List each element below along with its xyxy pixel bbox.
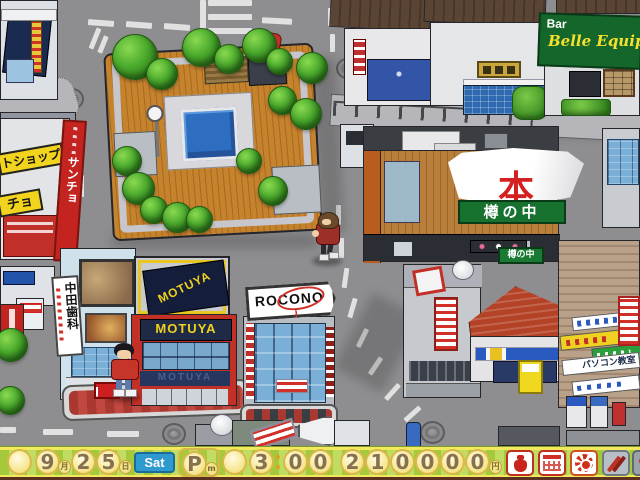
partial-structure [334,420,370,446]
yellow-stand-sign [518,360,543,394]
gear-icon [580,459,592,471]
money-bag-icon [514,460,527,472]
date-day-ones: 5 [96,449,121,475]
right-edge-building[interactable] [602,128,640,228]
rocono-sign: ROCONO [245,281,337,321]
red-vertical-sign [353,39,366,75]
tree [214,44,244,74]
rocono-small-sign [276,379,308,393]
calendar-icon [543,461,561,471]
calendar-icon [543,455,561,459]
date-month: 9 [35,449,60,475]
road-dash [262,17,292,25]
money-digit: 0 [440,449,465,475]
gear-button[interactable] [570,450,598,476]
road-dash [107,431,139,437]
motuya-windows [142,342,230,370]
road-dash [0,427,16,433]
book-sign: 本 [448,148,584,208]
money-bag-button[interactable] [506,450,534,476]
pushpin-button[interactable] [632,450,640,476]
road-dash [88,19,114,27]
corner-shop-building[interactable] [0,0,58,100]
motuya-building[interactable]: MOTUYA MOTUYA [131,314,237,406]
calendar-button[interactable] [538,450,566,476]
vending-machine[interactable] [612,402,626,426]
game-screen: とまれ トショップ チョ サンチョ [0,0,640,480]
menu-board [603,69,635,97]
meridiem-sub: m [205,462,218,476]
money-digit: 2 [340,449,365,475]
tower-vertical-sign [434,297,458,351]
road-dash [330,34,335,52]
shop-sign-strip [475,347,565,361]
rooftop-billboard [412,266,446,297]
motuya-roof-sign: MOTUYA [134,256,230,318]
partial-rooftop [566,430,640,446]
motuya-facade-text: MOTUYA [140,319,232,341]
time-hour: 3 [249,449,274,475]
tree [146,58,178,90]
road-dash [342,268,350,289]
road-marking [208,0,252,6]
bar-sign: Bar Belle Equipe [537,12,640,70]
meridiem: P [182,451,207,477]
gold-sign [477,61,521,78]
date-day-tens: 2 [71,449,96,475]
road-marking [208,14,252,20]
rocono-left-banner [246,323,254,399]
motuya-awning-text: MOTUYA [140,371,230,386]
hud-oval [222,449,247,475]
tree [266,48,293,75]
road-dash [164,23,190,31]
banner-small-text [72,126,78,154]
bar-name: Belle Equipe [548,32,640,50]
money-digit: 0 [415,449,440,475]
date-month-unit: 月 [58,460,71,474]
road-dash [347,298,357,319]
time-colon-dot [276,465,280,469]
tree [0,386,25,415]
weekday-badge: Sat [134,452,175,473]
road-dash [403,405,421,422]
motuya-roof-text: MOTUYA [156,268,213,306]
roof [556,0,640,14]
status-bar: 9 月 2 5 日 Sat P m 3 0 0 2 1 0 0 0 0 円 [0,446,640,478]
money-digit: 0 [465,449,490,475]
bar-building[interactable] [544,64,640,116]
bottle-object [406,422,421,448]
hedge [561,99,611,116]
vending-machine[interactable] [590,396,608,428]
noren-curtain [367,59,431,101]
tree [236,148,262,174]
tree [186,206,213,233]
tree [0,328,28,362]
manhole [420,421,445,444]
sancho-banner-text: サンチョ [60,156,83,237]
rocono-red-ellipse [275,283,327,314]
manhole [162,423,186,445]
tree [296,52,328,84]
money-digit: 1 [365,449,390,475]
time-minute-tens: 0 [283,449,308,475]
rooftop-tank [210,414,234,436]
date-day-unit: 日 [119,460,132,474]
billboard-photo [79,259,135,307]
pedestrian-walker[interactable] [310,210,344,268]
money-digit: 0 [390,449,415,475]
izakaya-vertical-sign [618,296,640,346]
barrel-sign: 樽の中 [458,200,566,224]
road-marking [97,35,108,54]
bush [512,86,548,120]
food-photo-sign [85,313,127,343]
hud-oval [7,449,32,475]
partial-rooftop [498,426,560,446]
rooftop-pool [180,107,239,162]
tree [258,176,288,206]
rocono-building[interactable] [243,316,335,412]
meridiem-frame: P m [178,448,220,477]
road-dash [126,21,152,29]
water-tank [452,260,474,280]
tree [290,98,322,130]
bar-label: Bar [546,16,566,31]
time-minute-ones: 0 [308,449,333,475]
money-unit: 円 [489,460,502,474]
pencil-button[interactable] [602,450,630,476]
road-dash [43,429,73,435]
road-dash [384,383,401,401]
barrel-sign-small: 樽の中 [498,247,544,264]
shop-boy[interactable] [100,342,146,402]
time-colon-dot [276,455,280,459]
vending-machine[interactable] [566,396,587,428]
rocono-right-banner [326,327,334,397]
dental-sign: 中田歯科 [51,275,84,357]
